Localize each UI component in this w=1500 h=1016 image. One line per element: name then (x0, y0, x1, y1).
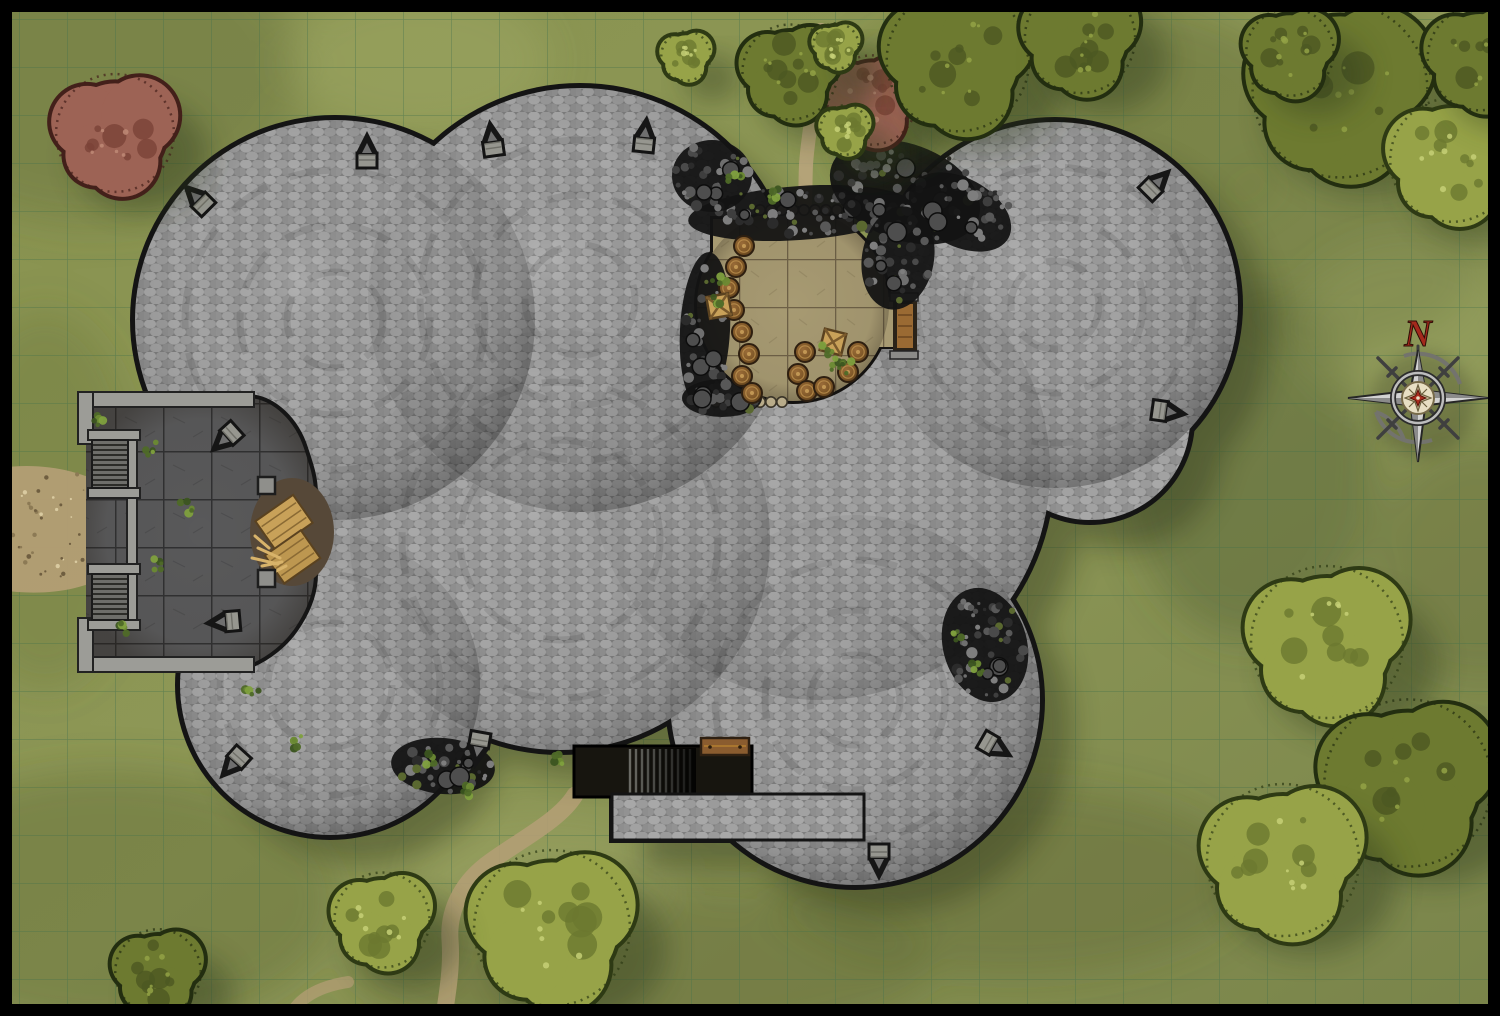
barrel (726, 257, 746, 277)
south-wall-footing (612, 794, 864, 840)
barrel (734, 236, 754, 256)
barrel (732, 322, 752, 342)
barrel (742, 383, 762, 403)
battle-map-canvas: N (0, 0, 1500, 1016)
battle-map-stage: N (0, 0, 1500, 1016)
compass-north-label: N (1403, 313, 1433, 355)
barrel (795, 342, 815, 362)
barrel (739, 344, 759, 364)
broken-gate-debris (250, 477, 334, 587)
barrel (814, 377, 834, 397)
stairwell-steps (626, 748, 696, 796)
west-courtyard (78, 392, 334, 672)
stairwell-door (701, 738, 749, 755)
